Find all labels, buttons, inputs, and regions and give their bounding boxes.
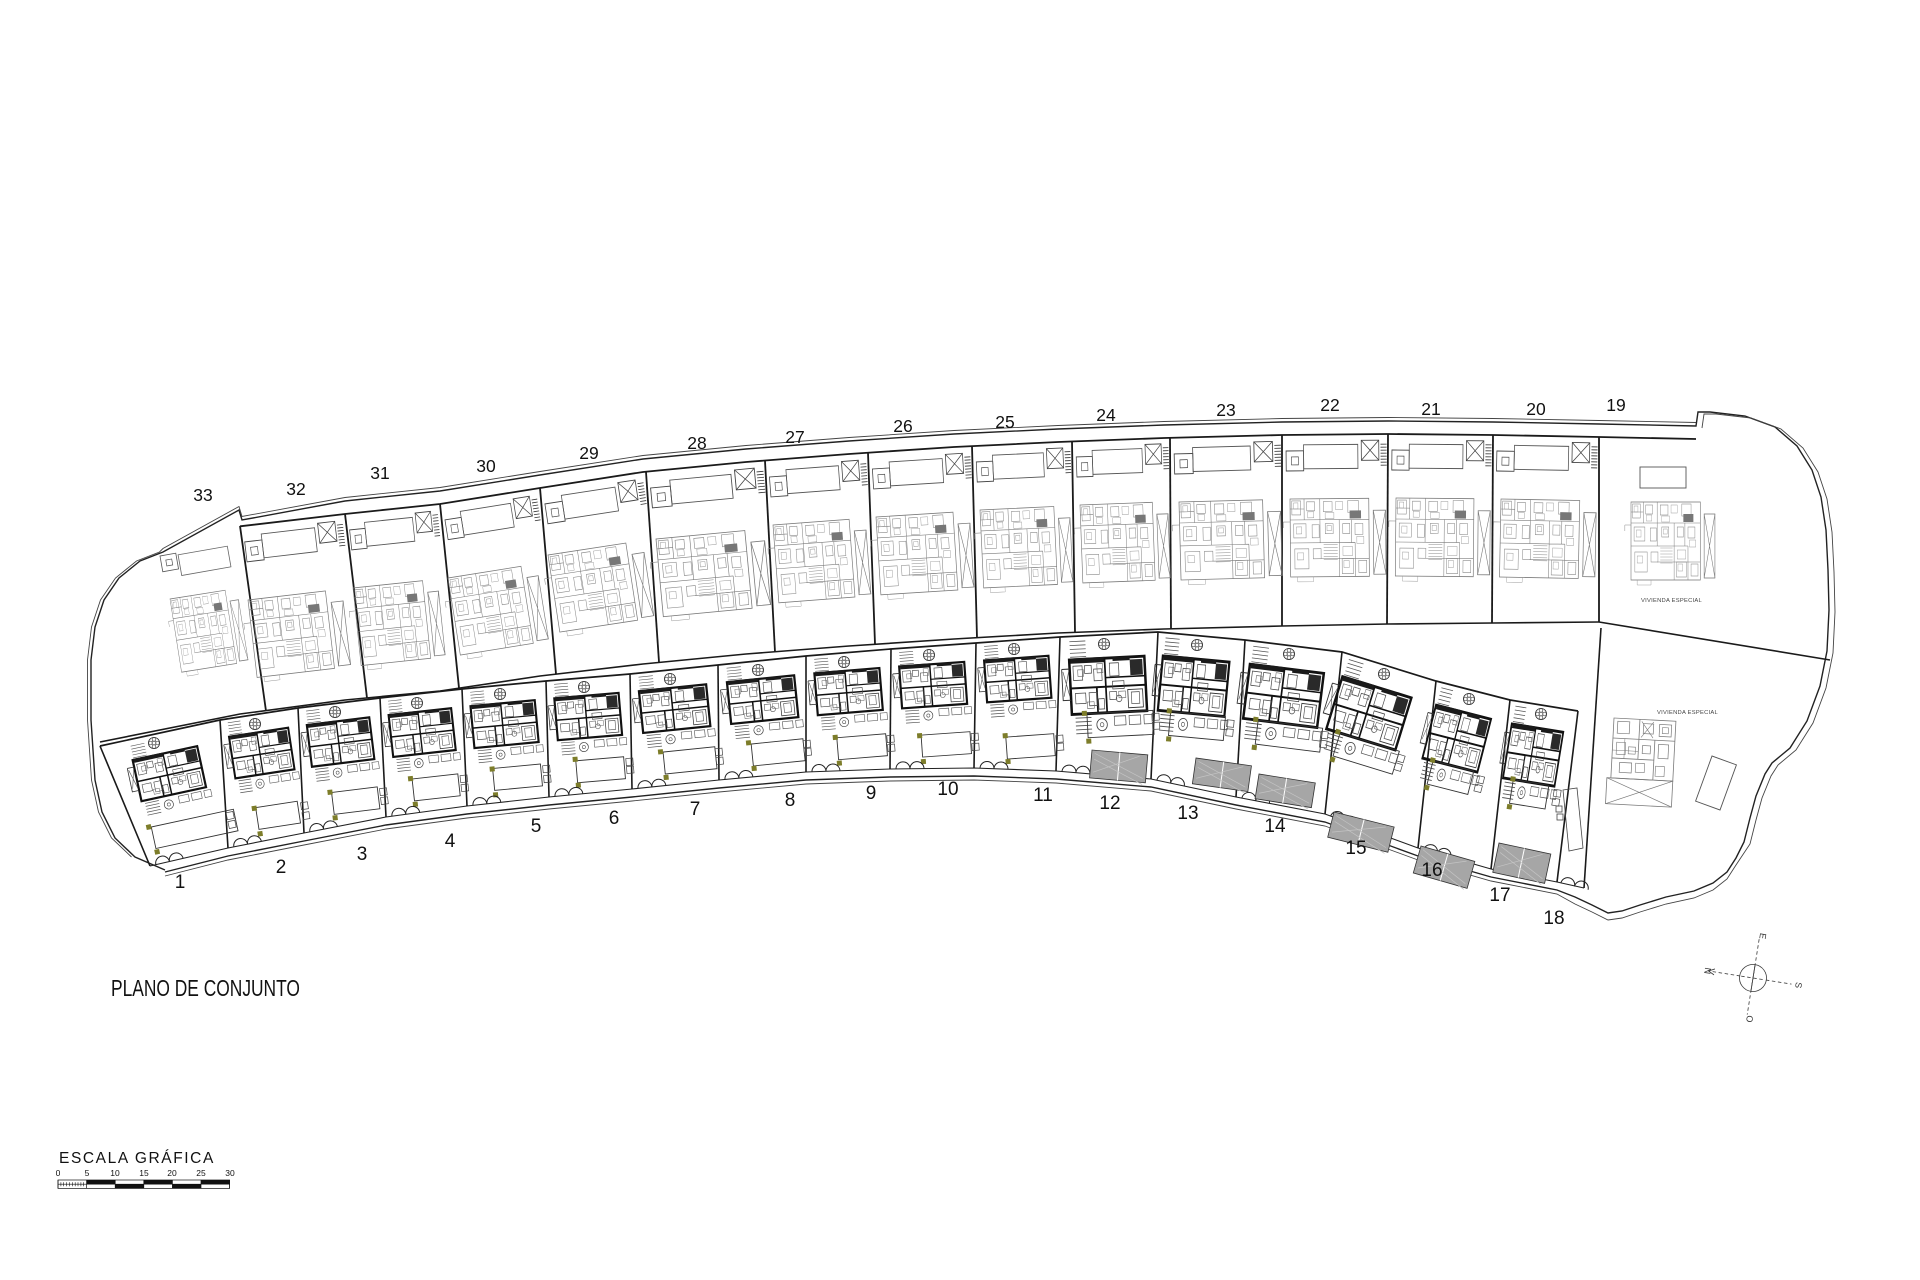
svg-text:32: 32 [286, 479, 305, 499]
svg-text:17: 17 [1489, 885, 1510, 906]
svg-text:14: 14 [1264, 816, 1286, 837]
svg-text:5: 5 [85, 1168, 90, 1178]
svg-text:21: 21 [1421, 399, 1440, 419]
svg-text:25: 25 [196, 1168, 206, 1178]
svg-text:7: 7 [690, 799, 701, 820]
svg-text:PLANO DE CONJUNTO: PLANO DE CONJUNTO [111, 976, 300, 1002]
svg-text:4: 4 [445, 831, 456, 852]
svg-text:27: 27 [785, 427, 804, 447]
svg-text:23: 23 [1216, 400, 1235, 420]
svg-text:13: 13 [1177, 803, 1198, 824]
svg-text:19: 19 [1606, 395, 1625, 415]
svg-text:16: 16 [1421, 860, 1442, 881]
svg-text:8: 8 [785, 790, 796, 811]
svg-text:15: 15 [1345, 838, 1366, 859]
svg-text:15: 15 [139, 1168, 149, 1178]
svg-text:22: 22 [1320, 395, 1339, 415]
svg-text:2: 2 [276, 857, 287, 878]
svg-text:0: 0 [56, 1168, 61, 1178]
svg-text:29: 29 [579, 443, 598, 463]
svg-text:9: 9 [866, 783, 877, 804]
svg-text:1: 1 [175, 872, 186, 893]
svg-text:33: 33 [193, 485, 212, 505]
svg-text:31: 31 [370, 463, 389, 483]
svg-text:5: 5 [531, 816, 542, 837]
svg-text:3: 3 [357, 844, 368, 865]
svg-text:ESCALA GRÁFICA: ESCALA GRÁFICA [59, 1150, 215, 1167]
svg-text:25: 25 [995, 412, 1014, 432]
svg-text:26: 26 [893, 416, 912, 436]
svg-text:6: 6 [609, 808, 620, 829]
svg-text:VIVIENDA ESPECIAL: VIVIENDA ESPECIAL [1657, 710, 1718, 716]
svg-text:VIVIENDA ESPECIAL: VIVIENDA ESPECIAL [1641, 598, 1702, 604]
svg-text:30: 30 [476, 456, 496, 476]
svg-text:11: 11 [1033, 785, 1053, 806]
svg-text:24: 24 [1096, 405, 1116, 425]
svg-text:20: 20 [167, 1168, 177, 1178]
svg-text:10: 10 [110, 1168, 120, 1178]
svg-text:30: 30 [225, 1168, 235, 1178]
svg-text:18: 18 [1543, 908, 1564, 929]
svg-text:20: 20 [1526, 399, 1546, 419]
svg-text:28: 28 [687, 433, 706, 453]
svg-text:10: 10 [937, 779, 958, 800]
svg-text:12: 12 [1099, 793, 1120, 814]
